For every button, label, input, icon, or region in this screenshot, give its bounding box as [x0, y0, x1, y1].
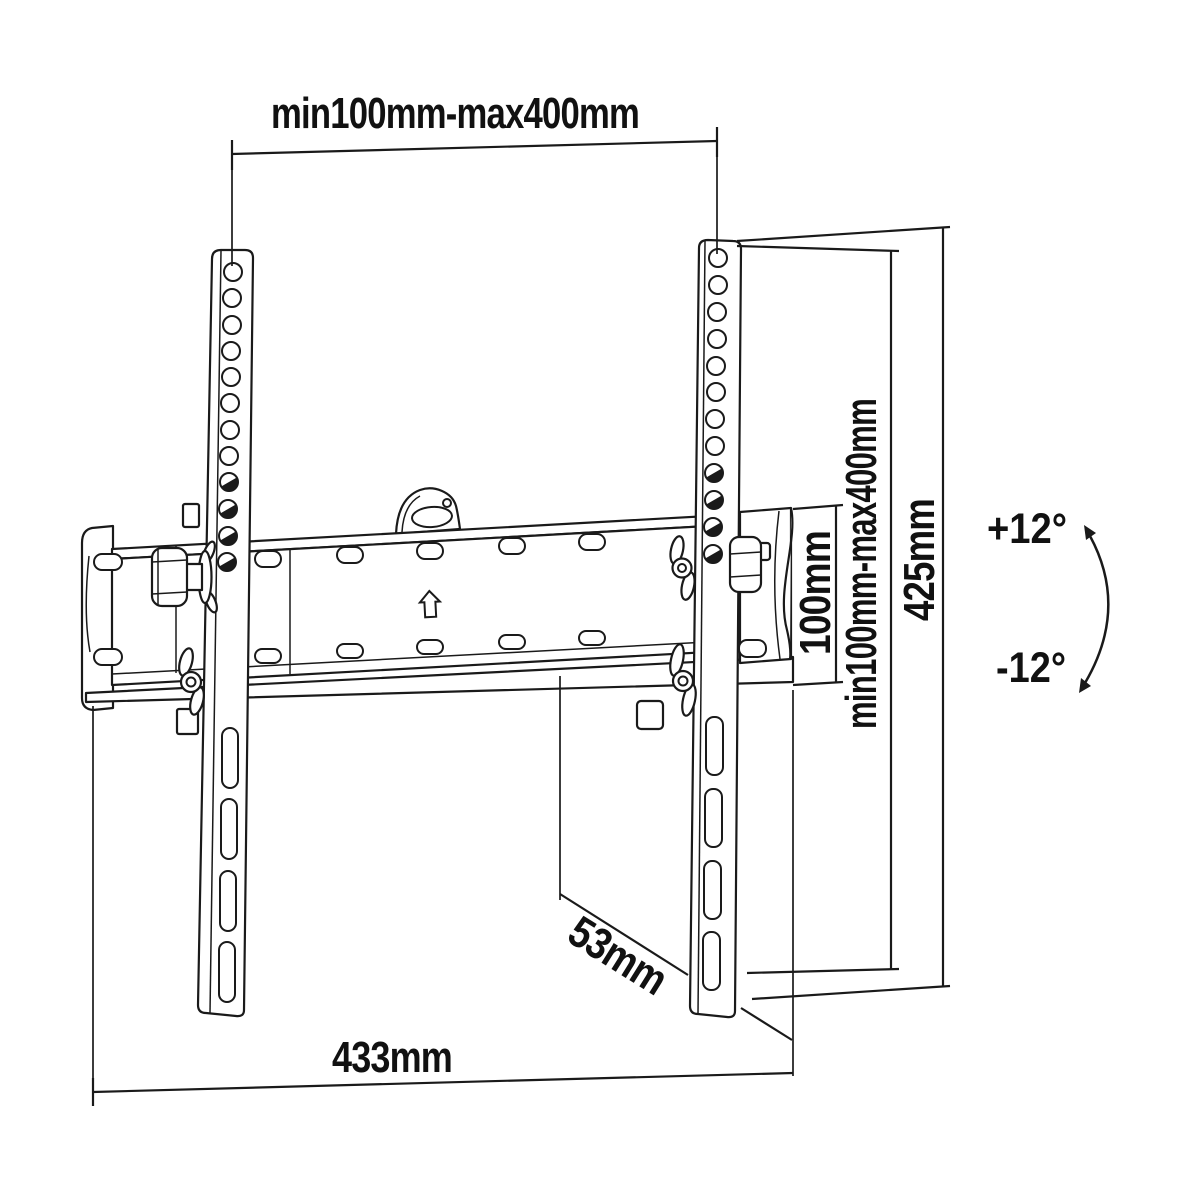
- bracket-height-label: 425mm: [895, 499, 944, 621]
- vesa-width-label: min100mm-max400mm: [271, 89, 639, 138]
- tilt-up-label: +12°: [987, 505, 1067, 553]
- tilt-down-label: -12°: [996, 644, 1066, 692]
- dim-wall-clearance: 53mm: [560, 676, 792, 1040]
- left-locking-knob: [152, 540, 219, 614]
- left-upper-clamp-tab: [183, 504, 199, 527]
- tv-wall-mount-technical-diagram: min100mm-max400mm min100mm-max400mm 425m…: [0, 0, 1200, 1200]
- left-vesa-bracket: [198, 250, 253, 1016]
- right-vesa-bracket: [690, 240, 741, 1017]
- dim-plate-width: 433mm: [93, 690, 793, 1106]
- plate-width-label: 433mm: [332, 1033, 452, 1082]
- cap-slot-upper: [94, 554, 122, 570]
- dim-vesa-width: min100mm-max400mm: [232, 89, 717, 266]
- right-lower-clamp-tab: [637, 701, 663, 729]
- vesa-height-label: min100mm-max400mm: [837, 399, 886, 729]
- tilt-arc-arrow-icon: [1079, 525, 1108, 693]
- dim-plate-height: 100mm: [791, 505, 843, 685]
- plate-height-label: 100mm: [791, 531, 840, 655]
- wall-clearance-label: 53mm: [560, 907, 676, 1005]
- cap-slot-lower: [94, 649, 122, 665]
- hanging-tab: [396, 488, 460, 534]
- tilt-angle-indicator: +12° -12°: [987, 505, 1108, 693]
